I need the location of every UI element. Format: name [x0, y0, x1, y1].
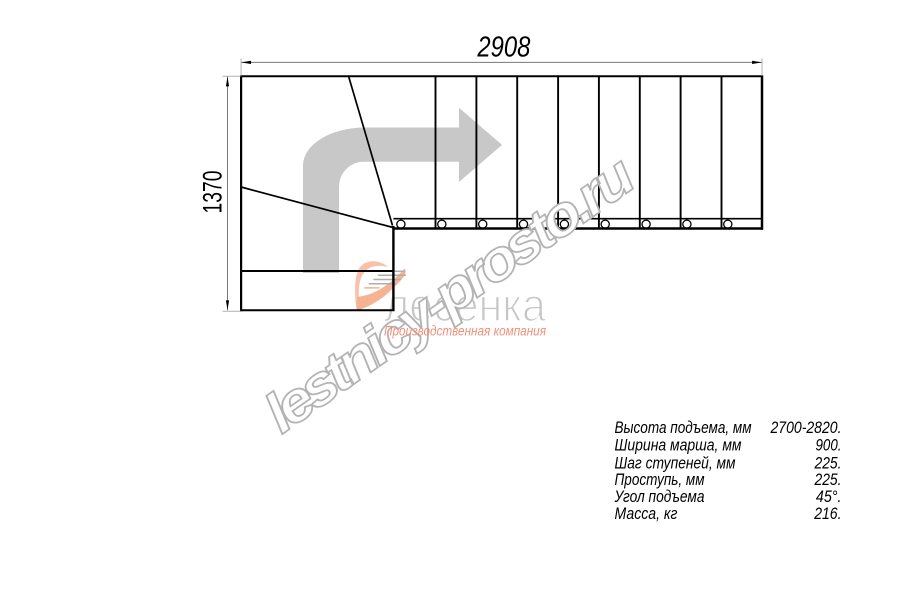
svg-text:1370: 1370	[198, 171, 228, 214]
svg-text:Ширина марша, мм: Ширина марша, мм	[615, 436, 742, 455]
svg-text:Производственная компания: Производственная компания	[384, 323, 546, 338]
svg-text:Угол подъема: Угол подъема	[614, 487, 705, 506]
svg-text:2700-2820.: 2700-2820.	[770, 418, 842, 437]
svg-text:Высота подъема, мм: Высота подъема, мм	[615, 418, 752, 437]
svg-text:2908: 2908	[477, 32, 531, 64]
svg-text:45°.: 45°.	[816, 487, 842, 506]
svg-text:Масса, кг: Масса, кг	[615, 504, 678, 523]
svg-text:216.: 216.	[813, 504, 841, 523]
svg-text:900.: 900.	[816, 436, 842, 455]
